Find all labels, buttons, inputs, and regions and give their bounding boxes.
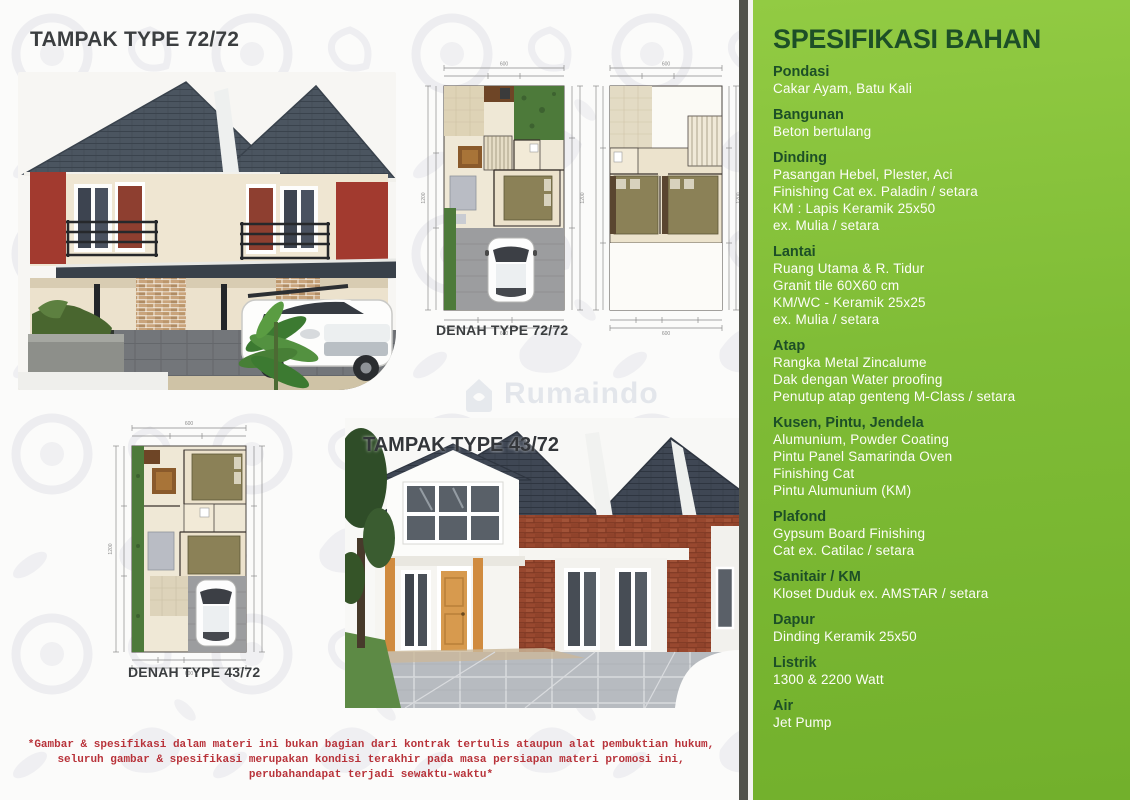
floorplan-72-second-floor: 600 600 1200 bbox=[590, 58, 742, 340]
spec-section-line: ex. Mulia / setara bbox=[773, 311, 1113, 328]
spec-section-heading: Sanitair / KM bbox=[773, 569, 1113, 585]
spec-section-line: Granit tile 60X60 cm bbox=[773, 277, 1113, 294]
spec-section: DapurDinding Keramik 25x50 bbox=[773, 612, 1113, 645]
spec-section: Kusen, Pintu, JendelaAlumunium, Powder C… bbox=[773, 415, 1113, 499]
disclaimer-line: *Gambar & spesifikasi dalam materi ini b… bbox=[0, 738, 742, 753]
tall-window-1 bbox=[564, 568, 600, 650]
red-accent-right bbox=[336, 182, 388, 268]
watermark-house-icon bbox=[462, 375, 496, 413]
spec-section: DindingPasangan Hebel, Plester, AciFinis… bbox=[773, 150, 1113, 234]
spec-section-line: KM : Lapis Keramik 25x50 bbox=[773, 200, 1113, 217]
red-accent-left bbox=[30, 172, 66, 264]
vertical-divider bbox=[739, 0, 748, 800]
watermark-text: Rumaindo bbox=[504, 377, 659, 411]
disclaimer-line: perubahandapat terjadi sewaktu-waktu* bbox=[0, 768, 742, 783]
svg-text:1200: 1200 bbox=[421, 192, 427, 203]
brochure-page: TAMPAK TYPE 72/72 bbox=[0, 0, 1130, 800]
spec-section-line: Dinding Keramik 25x50 bbox=[773, 628, 1113, 645]
spec-section-line: Penutup atap genteng M-Class / setara bbox=[773, 388, 1113, 405]
svg-text:1200: 1200 bbox=[108, 543, 114, 554]
spec-section-heading: Lantai bbox=[773, 244, 1113, 260]
svg-text:1200: 1200 bbox=[580, 192, 586, 203]
spec-section-line: Rangka Metal Zincalume bbox=[773, 354, 1113, 371]
plan-car bbox=[196, 580, 236, 646]
spec-section: PondasiCakar Ayam, Batu Kali bbox=[773, 64, 1113, 97]
svg-text:600: 600 bbox=[662, 331, 671, 337]
tampak-72-title: TAMPAK TYPE 72/72 bbox=[30, 28, 239, 52]
spec-section: LantaiRuang Utama & R. TidurGranit tile … bbox=[773, 244, 1113, 328]
spec-section-line: Gypsum Board Finishing bbox=[773, 525, 1113, 542]
spec-section: AtapRangka Metal ZincalumeDak dengan Wat… bbox=[773, 338, 1113, 405]
spec-section: AirJet Pump bbox=[773, 698, 1113, 731]
balcony-right bbox=[240, 184, 330, 260]
spec-section: Sanitair / KMKloset Duduk ex. AMSTAR / s… bbox=[773, 569, 1113, 602]
porch-window-grid bbox=[403, 482, 503, 544]
spec-panel: SPESIFIKASI BAHAN PondasiCakar Ayam, Bat… bbox=[753, 0, 1130, 800]
watermark: Rumaindo bbox=[462, 370, 692, 418]
floorplan-72-first-floor: 600 600 1200 1200 bbox=[420, 58, 588, 340]
spec-section-heading: Atap bbox=[773, 338, 1113, 354]
svg-text:600: 600 bbox=[662, 62, 671, 68]
spec-section-line: Pintu Panel Samarinda Oven bbox=[773, 448, 1113, 465]
tampak-43-title: TAMPAK TYPE 43/72 bbox=[363, 434, 559, 457]
disclaimer-text: *Gambar & spesifikasi dalam materi ini b… bbox=[0, 738, 742, 783]
spec-section-heading: Pondasi bbox=[773, 64, 1113, 80]
spec-section-line: KM/WC - Keramik 25x25 bbox=[773, 294, 1113, 311]
front-door bbox=[437, 566, 471, 652]
spec-section-line: 1300 & 2200 Watt bbox=[773, 671, 1113, 688]
spec-section-line: Finishing Cat bbox=[773, 465, 1113, 482]
balcony-left bbox=[66, 182, 158, 257]
spec-section-line: Cat ex. Catilac / setara bbox=[773, 542, 1113, 559]
house-photo-43: TAMPAK TYPE 43/72 bbox=[345, 418, 740, 708]
spec-section: Listrik1300 & 2200 Watt bbox=[773, 655, 1113, 688]
denah-72-label: DENAH TYPE 72/72 bbox=[436, 322, 568, 338]
spec-section: PlafondGypsum Board FinishingCat ex. Cat… bbox=[773, 509, 1113, 559]
house-photo-72 bbox=[18, 72, 396, 390]
porch-side-window bbox=[401, 570, 431, 650]
spec-section-heading: Kusen, Pintu, Jendela bbox=[773, 415, 1113, 431]
spec-section-line: Finishing Cat ex. Paladin / setara bbox=[773, 183, 1113, 200]
spec-section-line: Pasangan Hebel, Plester, Aci bbox=[773, 166, 1113, 183]
spec-section-line: Kloset Duduk ex. AMSTAR / setara bbox=[773, 585, 1113, 602]
disclaimer-line: seluruh gambar & spesifikasi merupakan k… bbox=[0, 753, 742, 768]
porch-post-right bbox=[473, 558, 483, 655]
spec-panel-title: SPESIFIKASI BAHAN bbox=[773, 24, 1041, 55]
spec-section-heading: Listrik bbox=[773, 655, 1113, 671]
spec-section-heading: Bangunan bbox=[773, 107, 1113, 123]
spec-section-heading: Plafond bbox=[773, 509, 1113, 525]
svg-text:600: 600 bbox=[500, 62, 509, 68]
floorplan-43: 600 600 1200 bbox=[106, 416, 278, 678]
plan-car bbox=[485, 238, 537, 302]
house-72-illustration bbox=[18, 72, 396, 390]
spec-section-line: Beton bertulang bbox=[773, 123, 1113, 140]
spec-section-line: ex. Mulia / setara bbox=[773, 217, 1113, 234]
spec-section-heading: Dinding bbox=[773, 150, 1113, 166]
house-43-illustration bbox=[345, 418, 740, 708]
denah-43-label: DENAH TYPE 43/72 bbox=[128, 664, 260, 680]
spec-section-heading: Dapur bbox=[773, 612, 1113, 628]
spec-section-line: Cakar Ayam, Batu Kali bbox=[773, 80, 1113, 97]
spec-section-line: Pintu Alumunium (KM) bbox=[773, 482, 1113, 499]
svg-text:600: 600 bbox=[185, 421, 194, 427]
spec-section-line: Dak dengan Water proofing bbox=[773, 371, 1113, 388]
spec-section-line: Jet Pump bbox=[773, 714, 1113, 731]
spec-section-heading: Air bbox=[773, 698, 1113, 714]
spec-section-line: Ruang Utama & R. Tidur bbox=[773, 260, 1113, 277]
left-panel: TAMPAK TYPE 72/72 bbox=[0, 0, 752, 800]
spec-section: BangunanBeton bertulang bbox=[773, 107, 1113, 140]
spec-section-line: Alumunium, Powder Coating bbox=[773, 431, 1113, 448]
spec-sections: PondasiCakar Ayam, Batu KaliBangunanBeto… bbox=[773, 64, 1113, 741]
tall-window-2 bbox=[615, 568, 651, 650]
porch-post-left bbox=[385, 558, 395, 655]
